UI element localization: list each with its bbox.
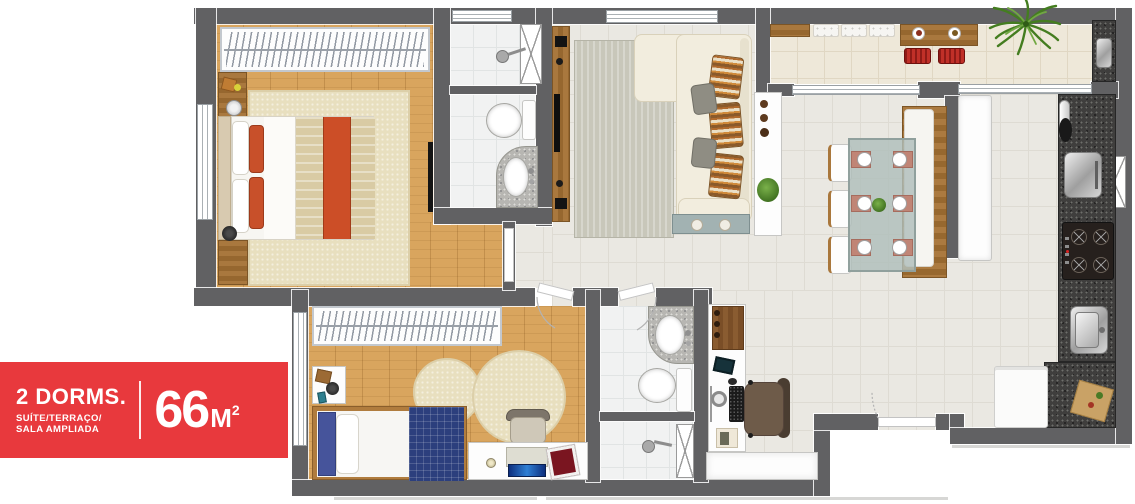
kitchen-faucet	[1099, 327, 1105, 333]
plate-6	[892, 240, 907, 255]
suite-wardrobe	[220, 27, 430, 72]
vent-shaft-bath2	[676, 424, 694, 478]
wall-bed2-bath2	[586, 290, 600, 482]
desk-lamp	[486, 458, 496, 468]
office-mirror-stand	[710, 386, 712, 422]
wall-kitchen-bottom	[950, 428, 1132, 444]
kitchen-sink-basin	[1075, 312, 1099, 348]
wall-bath2-divider	[600, 412, 694, 421]
area-badge: 2 DORMS. SUÍTE/TERRAÇO/ SALA AMPLIADA 66…	[0, 362, 288, 458]
terrace-food-2	[952, 30, 958, 36]
bath2-faucet-knob	[686, 341, 691, 346]
kitchen-cooktop	[1062, 222, 1114, 280]
bedroom2-desk-chair-seat	[510, 417, 546, 444]
office-shelf-knob-2	[714, 321, 720, 327]
wall-right	[1116, 8, 1132, 444]
kitchen-prep-sink-handle	[1095, 161, 1098, 189]
office-keyboard	[729, 386, 744, 422]
office-phone	[716, 428, 738, 448]
suite-sheet-fold	[264, 117, 296, 239]
living-sideboard	[754, 92, 782, 236]
tv-panel-knob-top	[556, 58, 563, 65]
plate-4	[892, 152, 907, 167]
sideboard-flower-3	[760, 128, 769, 137]
bathroom1-window	[452, 10, 512, 22]
wall-bath1-bottom	[434, 208, 552, 224]
tv-panel-knob-bottom	[556, 180, 563, 187]
console-table	[672, 214, 750, 234]
cutting-board-veg-green	[1096, 392, 1103, 399]
wall-south-segment-a	[194, 288, 535, 306]
plate-3	[857, 240, 872, 255]
bedroom2-wardrobe	[312, 306, 502, 346]
floor-plan-image: 2 DORMS. SUÍTE/TERRAÇO/ SALA AMPLIADA 66…	[0, 0, 1135, 504]
terrace-stool-2	[938, 48, 965, 64]
suite-tv	[428, 142, 433, 212]
bath2-toilet-bowl	[638, 368, 676, 403]
suite-pillow-white-2	[232, 179, 249, 233]
suite-nightstand-bottom	[218, 240, 248, 285]
bath1-toilet-tank	[522, 100, 536, 140]
suite-floor-lamp	[222, 226, 237, 241]
suite-wardrobe-rail	[224, 49, 426, 51]
terrace-stool-1	[904, 48, 931, 64]
bath1-faucet-knob	[529, 179, 534, 184]
plate-2	[857, 196, 872, 211]
badge-area-number: 66	[154, 389, 208, 432]
bedroom2-phone	[317, 391, 327, 403]
wall-bath1-left	[434, 8, 450, 224]
office-chair-arm-1	[748, 380, 753, 385]
bath1-sink	[503, 157, 529, 197]
sideboard-flower-2	[760, 114, 768, 122]
plate-1	[857, 152, 872, 167]
bath2-sink	[655, 315, 685, 355]
badge-subtitle-line1: SUÍTE/TERRAÇO/	[16, 413, 126, 424]
suite-corridor-floor	[430, 222, 505, 288]
cutting-board-veg-red	[1088, 402, 1094, 408]
sideboard-plant	[757, 178, 779, 202]
living-window	[606, 10, 718, 23]
suite-table-lamp	[226, 100, 242, 116]
bedroom2-wardrobe-rail	[316, 325, 498, 327]
ground-shadow-kitchen	[952, 445, 1130, 448]
dining-centerpiece-plant	[872, 198, 886, 212]
bedroom2-window	[293, 312, 307, 446]
sofa-cushion-gray-2	[690, 137, 717, 169]
wall-bottomblock-bottom	[292, 480, 826, 496]
suite-bed	[231, 116, 374, 240]
terrace-sink	[1096, 38, 1112, 68]
office-shelf-knob-1	[714, 310, 720, 316]
dining-tall-cabinet	[958, 95, 992, 261]
burner-2	[1093, 229, 1109, 245]
badge-text-block: 2 DORMS. SUÍTE/TERRAÇO/ SALA AMPLIADA	[16, 385, 126, 435]
terrace-cushion-2	[841, 24, 867, 37]
hall-floor	[515, 224, 552, 288]
kitchen-prep-sink	[1064, 152, 1102, 198]
vent-shaft-bath1	[520, 24, 542, 84]
ground-shadow-left	[334, 497, 537, 500]
office-mirror	[711, 391, 727, 407]
badge-divider	[139, 381, 141, 439]
ground-shadow-right	[546, 497, 948, 500]
bath2-toilet-tank	[676, 368, 692, 412]
suite-bed-runner	[323, 117, 351, 239]
fridge	[994, 366, 1048, 428]
wall-bath1-shower-divider	[450, 86, 536, 94]
plate-5	[892, 196, 907, 211]
sofa-cushion-gray-1	[690, 82, 718, 115]
badge-title: 2 DORMS.	[16, 385, 126, 409]
bedroom2-blanket	[409, 407, 464, 481]
suite-pillow-white-1	[232, 121, 249, 175]
suite-headboard	[218, 116, 231, 240]
kitchen-vase	[1059, 118, 1072, 142]
tv-panel-speaker-top	[555, 36, 567, 47]
badge-subtitle-line2: SALA AMPLIADA	[16, 424, 126, 435]
suite-pillow-orange-1	[249, 125, 264, 173]
suite-window	[197, 104, 213, 220]
wall-entry-left	[814, 414, 878, 430]
kitchen-sink	[1070, 306, 1108, 354]
suite-decor-dot	[234, 84, 241, 91]
badge-area-exponent: 2	[232, 403, 240, 417]
office-chair-seat	[744, 382, 784, 436]
office-shelf-knob-3	[714, 332, 720, 338]
tv-panel-speaker-bottom	[555, 198, 567, 209]
burner-3	[1071, 257, 1087, 273]
terrace-cabinet	[770, 24, 810, 37]
entry-sideboard	[706, 452, 818, 480]
terrace-food-1	[916, 30, 922, 36]
bedroom2-pillow-navy	[318, 412, 336, 476]
console-tray-2	[719, 219, 731, 231]
office-chair-arm-2	[748, 433, 753, 438]
badge-area-block: 66 M 2	[154, 389, 239, 432]
entry-door-leaf	[878, 417, 936, 427]
laptop-screen	[508, 464, 546, 477]
burner-1	[1071, 229, 1087, 245]
suite-door-leaf	[504, 228, 514, 282]
bedroom2-pillow-white	[336, 414, 359, 474]
bath2-faucet	[685, 330, 691, 336]
living-tv	[554, 94, 560, 152]
bath1-toilet-bowl	[486, 103, 522, 138]
console-tray-1	[691, 219, 703, 231]
cooktop-indicator	[1066, 250, 1069, 253]
terrace-cushion-1	[813, 24, 839, 37]
bedroom2-lamp	[326, 382, 339, 395]
sideboard-flower-1	[760, 100, 768, 108]
desk-book	[547, 445, 580, 479]
burner-4	[1093, 257, 1109, 273]
office-mouse	[728, 378, 737, 385]
terrace-cushion-3	[869, 24, 895, 37]
bedroom2-bed-frame	[312, 406, 467, 480]
badge-area-unit: M	[210, 405, 232, 431]
office-phone-screen	[720, 432, 729, 445]
bath1-faucet	[528, 168, 534, 174]
kitchen-terrace-window	[958, 84, 1092, 94]
suite-pillow-orange-2	[249, 177, 264, 229]
terrace-sliding-door	[792, 85, 920, 95]
